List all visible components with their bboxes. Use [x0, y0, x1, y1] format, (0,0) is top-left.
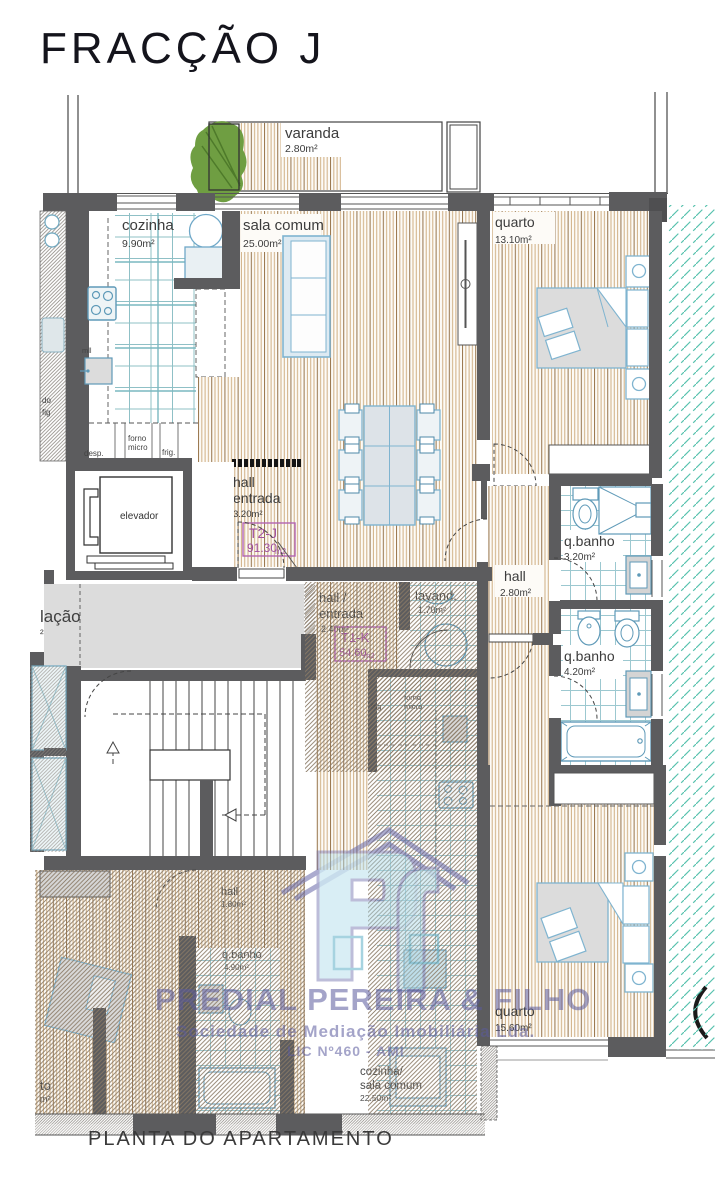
- svg-text:2.80m²: 2.80m²: [500, 588, 532, 599]
- svg-text:²: ²: [40, 628, 44, 640]
- svg-text:3.20m²: 3.20m²: [564, 552, 596, 563]
- svg-text:do: do: [42, 396, 51, 405]
- svg-text:desp.: desp.: [84, 449, 104, 458]
- svg-text:PLANTA DO APARTAMENTO: PLANTA DO APARTAMENTO: [88, 1128, 394, 1150]
- svg-text:sala comum: sala comum: [243, 217, 324, 234]
- svg-text:lação: lação: [40, 607, 81, 626]
- svg-text:hall: hall: [233, 474, 255, 490]
- svg-text:4.20m²: 4.20m²: [564, 667, 596, 678]
- svg-text:micro: micro: [128, 443, 148, 452]
- svg-text:2.80m²: 2.80m²: [285, 143, 318, 155]
- svg-text:PREDIAL PEREIRA & FILHO: PREDIAL PEREIRA & FILHO: [155, 982, 591, 1017]
- svg-text:hall: hall: [504, 568, 526, 584]
- svg-text:quarto: quarto: [495, 214, 535, 230]
- svg-text:varanda: varanda: [285, 125, 340, 142]
- svg-text:13.10m²: 13.10m²: [495, 235, 532, 246]
- svg-text:forno: forno: [128, 434, 147, 443]
- svg-text:cozinha: cozinha: [122, 217, 174, 234]
- svg-text:frig.: frig.: [162, 448, 175, 457]
- svg-text:25.00m²: 25.00m²: [243, 238, 282, 250]
- svg-text:Sociedade de Mediação Imobiliá: Sociedade de Mediação Imobiliária Lda.: [176, 1022, 535, 1041]
- svg-text:q.banho: q.banho: [564, 533, 615, 549]
- svg-text:mll: mll: [82, 346, 92, 355]
- svg-text:9.90m²: 9.90m²: [122, 238, 155, 250]
- svg-text:elevador: elevador: [120, 511, 159, 522]
- svg-text:3.20m²: 3.20m²: [233, 509, 263, 520]
- svg-text:FRACÇÃO J: FRACÇÃO J: [40, 23, 325, 73]
- svg-text:T2-J: T2-J: [249, 525, 277, 541]
- svg-text:q.banho: q.banho: [564, 648, 615, 664]
- svg-text:LIC Nº460 - AMI: LIC Nº460 - AMI: [287, 1043, 405, 1059]
- svg-text:fig: fig: [42, 408, 50, 417]
- svg-text:entrada: entrada: [233, 490, 281, 506]
- svg-text:91.30: 91.30: [247, 541, 277, 555]
